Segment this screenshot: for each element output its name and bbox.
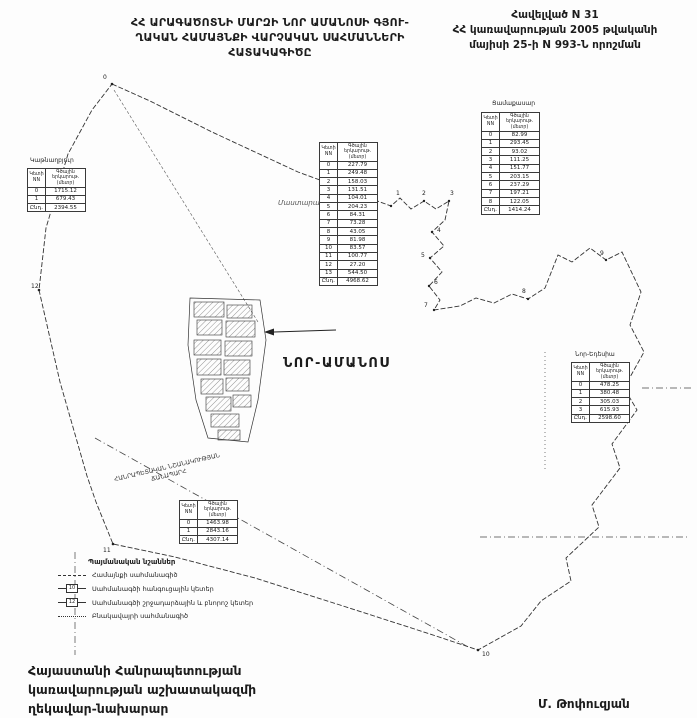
legend-item-node-points: 10 Սահմանագծի հանգուցային կետեր	[58, 584, 258, 593]
point-label: 4	[437, 227, 441, 234]
table-cell: 73.28	[338, 219, 378, 227]
table-cell: 4	[320, 194, 338, 202]
signature-line-3: ղեկավար-նախարար	[28, 700, 256, 718]
table-cell: 3	[482, 156, 500, 164]
table-row: 3111.25	[482, 156, 540, 164]
table-cell: 227.79	[338, 161, 378, 169]
annex-reference: Հավելված N 31 ՀՀ կառավարության 2005 թվակ…	[420, 8, 690, 54]
table-cell: 84.31	[338, 211, 378, 219]
table-row: 3615.93	[572, 406, 630, 414]
table-cell: 1715.12	[46, 187, 86, 195]
table-cell: 122.05	[500, 198, 540, 206]
legend: Պայմանական նշաններ Համայնքի սահմանագիծ 1…	[58, 558, 258, 620]
table-cell: 83.57	[338, 244, 378, 252]
table-row: 4151.77	[482, 164, 540, 172]
village-name-label: ՆՈՐ-ԱՄԱՆՈՍ	[283, 356, 390, 371]
turn-point-symbol-number: 12	[66, 598, 78, 607]
table-cell: 158.03	[338, 178, 378, 186]
legend-item-turn-points: 12 Սահմանագծի շրջադարձային և բնորոշ կետե…	[58, 598, 258, 607]
table-cell: 2394.55	[46, 204, 86, 212]
table-row: 0478.25	[572, 381, 630, 389]
table-header-cell: Գծային երկարութ. (մետր)	[338, 143, 378, 162]
settlement-boundary-symbol	[58, 616, 86, 617]
table-cell: 82.99	[500, 131, 540, 139]
table-row: 5204.23	[320, 203, 378, 211]
table-header-cell: Կետի NN	[572, 363, 590, 382]
table-cell: 2	[482, 148, 500, 156]
table-row: 1293.45	[482, 139, 540, 147]
legend-item-label: Սահմանագծի շրջադարձային և բնորոշ կետեր	[92, 599, 253, 607]
table-row: 11100.77	[320, 252, 378, 260]
table-cell: 104.01	[338, 194, 378, 202]
table-row: 8122.05	[482, 198, 540, 206]
table-cell: 2	[320, 178, 338, 186]
table-cell: 7	[320, 219, 338, 227]
signature-line-2: կառավարության աշխատակազմի	[28, 681, 256, 700]
table-cell: 8	[320, 228, 338, 236]
table-row: Ընդ.1414.24	[482, 206, 540, 214]
table-cell: 111.25	[500, 156, 540, 164]
annex-line-2: ՀՀ կառավարության 2005 թվականի	[420, 23, 690, 38]
table-row: 6237.29	[482, 181, 540, 189]
point-label: 2	[422, 190, 426, 197]
table-row: 1679.43	[28, 195, 86, 203]
table-cell: 1463.98	[198, 519, 238, 527]
table-cell: 0	[572, 381, 590, 389]
table-cell: 0	[28, 187, 46, 195]
table-row: 684.31	[320, 211, 378, 219]
table-row: 082.99	[482, 131, 540, 139]
table-cell: 1	[320, 169, 338, 177]
table-cell: 4307.14	[198, 536, 238, 544]
legend-item-community-boundary: Համայնքի սահմանագիծ	[58, 571, 258, 579]
table-cell: Ընդ.	[180, 536, 198, 544]
table-cell: 93.02	[500, 148, 540, 156]
neighbor-name-label: Մաստարա	[278, 199, 320, 207]
table-row: 0227.79	[320, 161, 378, 169]
signer-name: Մ. Թոփուզյան	[538, 697, 630, 711]
table-cell: 679.43	[46, 195, 86, 203]
page-title-line-2: ՂԱԿԱՆ ՀԱՄԱՅՆՔԻ ՎԱՐՉԱԿԱՆ ՍԱՀՄԱՆՆԵՐԻ	[110, 31, 430, 46]
table-header-cell: Գծային երկարութ. (մետր)	[198, 501, 238, 520]
signature-block: Հայաստանի Հանրապետության կառավարության ա…	[28, 662, 256, 718]
legend-item-label: Բնակավայրի սահմանագիծ	[92, 612, 188, 620]
table-cell: 3	[572, 406, 590, 414]
table-cell: 2598.60	[590, 414, 630, 422]
table-row: 2158.03	[320, 178, 378, 186]
table-cell: Ընդ.	[28, 204, 46, 212]
table-cell: 5	[320, 203, 338, 211]
table-cell: 12	[320, 261, 338, 269]
table-cell: 151.77	[500, 164, 540, 172]
boundary-table-bottom: Կետի NNԳծային երկարութ. (մետր)01463.9812…	[179, 500, 238, 544]
table-row: 12843.16	[180, 527, 238, 535]
table-cell: 100.77	[338, 252, 378, 260]
boundary-table-topright: Կետի NNԳծային երկարութ. (մետր)082.991293…	[481, 112, 540, 215]
legend-item-label: Սահմանագծի հանգուցային կետեր	[92, 585, 214, 593]
legend-item-label: Համայնքի սահմանագիծ	[92, 571, 178, 579]
table-cell: Ընդ.	[572, 414, 590, 422]
legend-item-settlement-boundary: Բնակավայրի սահմանագիծ	[58, 612, 258, 620]
table-header-cell: Կետի NN	[482, 113, 500, 132]
table-row: 01715.12	[28, 187, 86, 195]
table-cell: 13	[320, 269, 338, 277]
page-title: ՀՀ ԱՐԱԳԱԾՈՏՆԻ ՄԱՐԶԻ ՆՈՐ ԱՄԱՆՈՍԻ ԳՅՈՒ- ՂԱ…	[110, 16, 430, 61]
table-header-cell: Կետի NN	[28, 169, 46, 188]
table-cell: 1	[180, 527, 198, 535]
point-label: 7	[424, 302, 428, 309]
table-row: 13544.50	[320, 269, 378, 277]
table-cell: 10	[320, 244, 338, 252]
boundary-table-center: Կետի NNԳծային երկարութ. (մետր)0227.79124…	[319, 142, 378, 286]
table-cell: 0	[180, 519, 198, 527]
cadastral-map-sheet: ՀՀ ԱՐԱԳԱԾՈՏՆԻ ՄԱՐԶԻ ՆՈՐ ԱՄԱՆՈՍԻ ԳՅՈՒ- ՂԱ…	[0, 0, 697, 718]
point-label: 10	[482, 651, 490, 658]
table-cell: Ընդ.	[482, 206, 500, 214]
point-label: 1	[396, 190, 400, 197]
table-cell: 293.45	[500, 139, 540, 147]
page-title-line-3: ՀԱՏԱԿԱԳԻԾԸ	[110, 46, 430, 61]
table-cell: 6	[320, 211, 338, 219]
right-table-title: Նոր-Եդեսիա	[575, 351, 615, 358]
table-row: 3131.51	[320, 186, 378, 194]
table-cell: 9	[320, 236, 338, 244]
table-row: 1083.57	[320, 244, 378, 252]
table-cell: 11	[320, 252, 338, 260]
table-cell: 203.15	[500, 173, 540, 181]
table-cell: 1414.24	[500, 206, 540, 214]
table-row: 1227.20	[320, 261, 378, 269]
table-cell: 3	[320, 186, 338, 194]
page-title-line-1: ՀՀ ԱՐԱԳԱԾՈՏՆԻ ՄԱՐԶԻ ՆՈՐ ԱՄԱՆՈՍԻ ԳՅՈՒ-	[110, 16, 430, 31]
boundary-table-right: Կետի NNԳծային երկարութ. (մետր)0478.25138…	[571, 362, 630, 423]
table-cell: 1	[572, 389, 590, 397]
table-header-cell: Գծային երկարութ. (մետր)	[46, 169, 86, 188]
legend-title: Պայմանական նշաններ	[58, 558, 258, 566]
table-cell: Ընդ.	[320, 277, 338, 285]
table-row: Ընդ.4307.14	[180, 536, 238, 544]
table-cell: 478.25	[590, 381, 630, 389]
point-label: 6	[434, 279, 438, 286]
table-row: 293.02	[482, 148, 540, 156]
table-cell: 0	[320, 161, 338, 169]
table-row: 1380.48	[572, 389, 630, 397]
point-label: 3	[450, 190, 454, 197]
boundary-table-left: Կետի NNԳծային երկարութ. (մետր)01715.1216…	[27, 168, 86, 212]
table-cell: 305.03	[590, 398, 630, 406]
table-cell: 204.23	[338, 203, 378, 211]
node-point-symbol-number: 10	[66, 584, 78, 593]
table-row: 5203.15	[482, 173, 540, 181]
table-cell: 27.20	[338, 261, 378, 269]
table-header-cell: Գծային երկարութ. (մետր)	[500, 113, 540, 132]
point-label: 5	[421, 252, 425, 259]
table-header-cell: Կետի NN	[180, 501, 198, 520]
table-cell: 6	[482, 181, 500, 189]
table-cell: 8	[482, 198, 500, 206]
node-point-symbol: 10	[58, 584, 86, 593]
table-cell: 81.98	[338, 236, 378, 244]
table-cell: 380.48	[590, 389, 630, 397]
village-area	[188, 298, 266, 442]
point-label: 0	[103, 74, 107, 81]
table-cell: 43.05	[338, 228, 378, 236]
table-row: Ընդ.2394.55	[28, 204, 86, 212]
table-row: 4104.01	[320, 194, 378, 202]
table-cell: 2	[572, 398, 590, 406]
table-cell: 615.93	[590, 406, 630, 414]
annex-line-1: Հավելված N 31	[420, 8, 690, 23]
table-cell: 544.50	[338, 269, 378, 277]
annex-line-3: մայիսի 25-ի N 993-Ն որոշման	[420, 38, 690, 53]
topright-table-title: Ցամաքասար	[492, 100, 535, 107]
table-cell: 4	[482, 164, 500, 172]
table-cell: 197.21	[500, 189, 540, 197]
table-cell: 4968.62	[338, 277, 378, 285]
table-cell: 5	[482, 173, 500, 181]
table-cell: 1	[482, 139, 500, 147]
signature-line-1: Հայաստանի Հանրապետության	[28, 662, 256, 681]
table-row: 7197.21	[482, 189, 540, 197]
table-cell: 0	[482, 131, 500, 139]
table-row: 773.28	[320, 219, 378, 227]
turn-point-symbol: 12	[58, 598, 86, 607]
table-row: Ընդ.2598.60	[572, 414, 630, 422]
table-row: 01463.98	[180, 519, 238, 527]
table-cell: 131.51	[338, 186, 378, 194]
left-table-title: Կաթնաղբյուր	[30, 157, 74, 164]
table-cell: 237.29	[500, 181, 540, 189]
arrow-icon	[264, 329, 336, 336]
point-label: 11	[103, 547, 111, 554]
internal-boundary-line	[114, 90, 258, 322]
table-row: 2305.03	[572, 398, 630, 406]
table-header-cell: Կետի NN	[320, 143, 338, 162]
point-label: 12	[31, 283, 39, 290]
point-label: 8	[522, 288, 526, 295]
table-cell: 2843.16	[198, 527, 238, 535]
table-row: 981.98	[320, 236, 378, 244]
table-cell: 1	[28, 195, 46, 203]
community-boundary-symbol	[58, 575, 86, 576]
table-header-cell: Գծային երկարութ. (մետր)	[590, 363, 630, 382]
table-row: 843.05	[320, 228, 378, 236]
table-row: 1249.48	[320, 169, 378, 177]
table-row: Ընդ.4968.62	[320, 277, 378, 285]
point-label: 9	[600, 250, 604, 257]
table-cell: 249.48	[338, 169, 378, 177]
table-cell: 7	[482, 189, 500, 197]
